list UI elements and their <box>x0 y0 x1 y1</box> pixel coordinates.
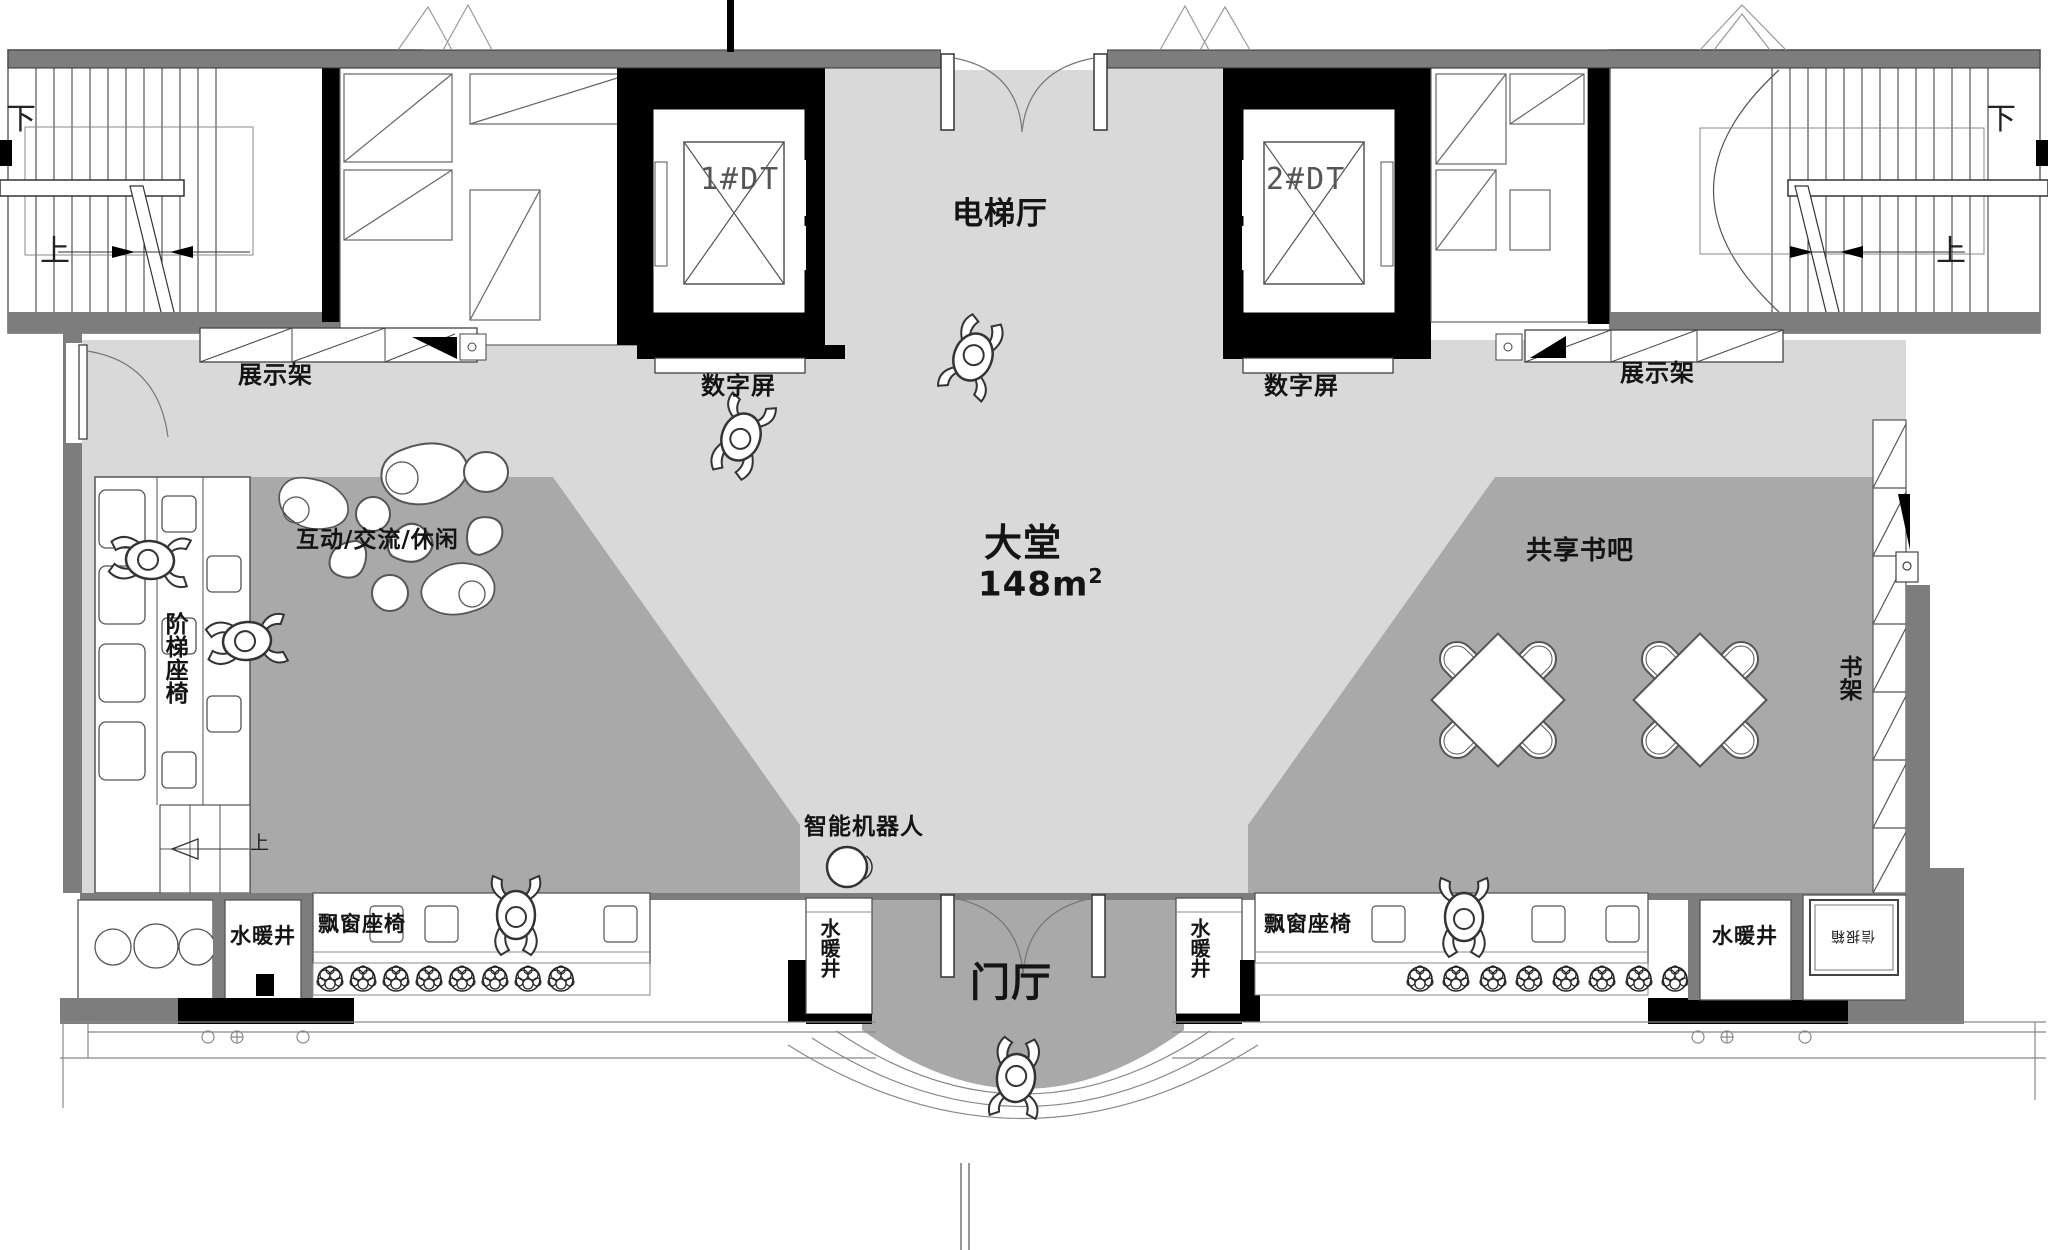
lobby-area-exponent: 2 <box>1088 564 1103 588</box>
utility-shaft-door-right-label: 水暖井 <box>1188 918 1209 978</box>
elevator-2 <box>1223 68 1431 345</box>
stepped-stair-up-label: 上 <box>250 834 270 854</box>
display-rack-left-label: 展示架 <box>238 363 313 388</box>
stairs-right-up-label: 上 <box>1936 236 1967 268</box>
plan-graphics <box>0 0 2048 1250</box>
lobby-area-value: 148m <box>978 564 1088 604</box>
bay-window-seat-left <box>313 893 650 995</box>
utility-shaft-door-left-label: 水暖井 <box>818 918 839 978</box>
elevator-hall-label: 电梯厅 <box>952 198 1048 231</box>
elevator-2-label: 2#DT <box>1266 164 1346 196</box>
utility-shaft-right <box>1700 900 1791 1000</box>
stairs-left-down-label: 下 <box>6 104 37 136</box>
display-rack-right <box>1496 330 1783 362</box>
stool-room <box>78 900 215 1000</box>
elevator-1 <box>617 68 825 345</box>
interactive-zone-label: 互动/交流/休闲 <box>296 528 459 552</box>
bookshelf-label: 书架 <box>1836 655 1860 701</box>
digital-screen-right-label: 数字屏 <box>1264 374 1339 399</box>
mailbox-room <box>1803 895 1906 1000</box>
utility-shaft-left-label: 水暖井 <box>230 925 296 947</box>
entrance-hall-label: 门厅 <box>970 962 1052 1004</box>
bay-window-seat-right-label: 飘窗座椅 <box>1264 913 1352 935</box>
book-bar-label: 共享书吧 <box>1526 538 1634 565</box>
lobby-area-label: 148m2 <box>978 566 1104 603</box>
right-staircase <box>1610 50 2048 333</box>
right-service-rooms <box>1431 50 1610 324</box>
stairs-left-up-label: 上 <box>40 236 71 268</box>
digital-screen-left-label: 数字屏 <box>701 374 776 399</box>
mailbox-label: 信报箱 <box>1830 928 1875 943</box>
stairs-right-down-label: 下 <box>1986 104 2017 136</box>
utility-shaft-right-label: 水暖井 <box>1712 925 1778 947</box>
lobby-label: 大堂 <box>984 524 1062 564</box>
left-service-rooms <box>322 50 637 345</box>
stepped-seating-label: 阶梯座椅 <box>162 612 186 704</box>
stepped-seating-stair <box>160 805 250 893</box>
bookshelf <box>1873 420 1930 893</box>
elevator-1-label: 1#DT <box>700 164 780 196</box>
display-rack-right-label: 展示架 <box>1620 361 1695 386</box>
floor-plan: 下 上 1#DT 2#DT 电梯厅 展示架 数字屏 数字屏 展示架 大堂 148… <box>0 0 2048 1250</box>
bay-window-seat-left-label: 飘窗座椅 <box>318 913 406 935</box>
smart-robot-label: 智能机器人 <box>804 815 924 839</box>
display-rack-left <box>200 328 486 362</box>
